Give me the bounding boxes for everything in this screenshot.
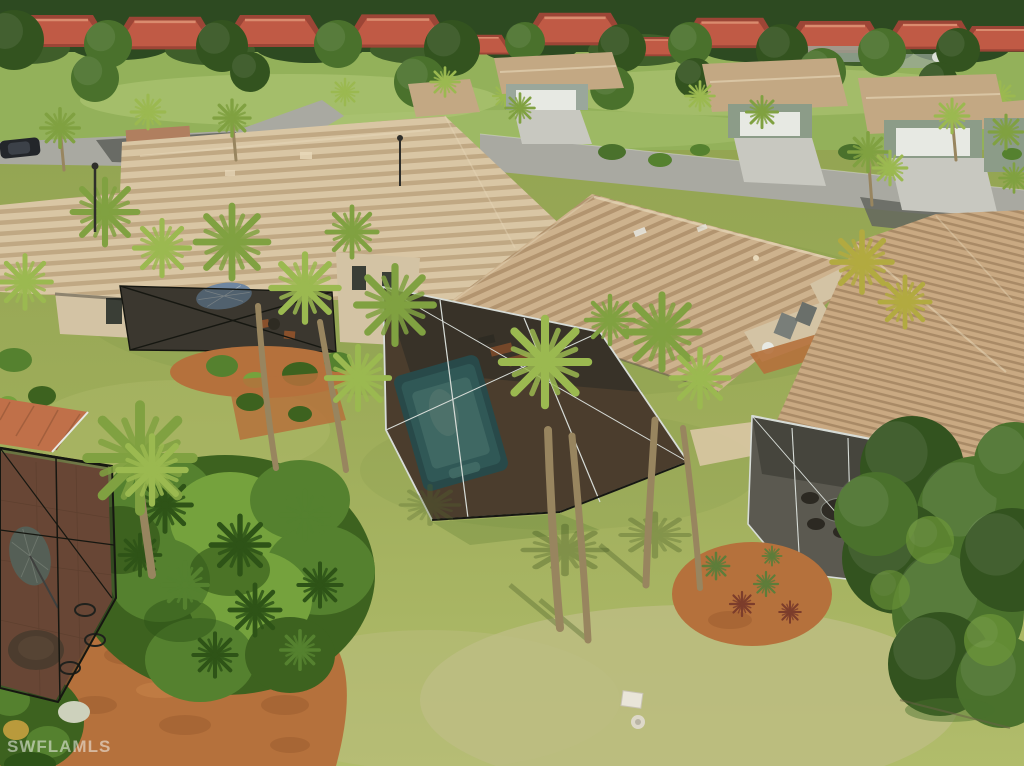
palm-tree — [746, 96, 778, 128]
palm-tree — [326, 206, 378, 258]
golden-palm — [831, 231, 893, 293]
roof-vent — [753, 255, 759, 261]
palm-tree — [40, 108, 80, 148]
palm-tree — [500, 317, 589, 406]
palm-tree — [117, 435, 187, 505]
window — [352, 266, 366, 290]
agave-plant — [754, 572, 779, 597]
palm-tree — [213, 99, 250, 136]
palm-tree — [505, 93, 535, 123]
driveway — [734, 138, 826, 186]
window — [106, 298, 122, 324]
agave-plant — [730, 592, 755, 617]
palm-tree — [0, 255, 52, 310]
mls-watermark: SWFLAMLS — [7, 737, 111, 757]
palm-tree — [195, 205, 269, 279]
palm-tree — [585, 295, 635, 345]
palm-tree — [270, 253, 340, 323]
agave-plant — [779, 601, 801, 623]
palm-tree — [685, 81, 715, 111]
roof-vent — [300, 152, 312, 159]
palm-tree — [71, 178, 138, 245]
palm-tree — [670, 348, 730, 408]
palm-tree — [989, 115, 1024, 150]
golden-palm — [879, 276, 931, 328]
palm-tree — [355, 265, 434, 344]
aerial-neighborhood-photo: SWFLAMLS — [0, 0, 1024, 766]
palm-tree — [935, 99, 970, 134]
palm-tree — [873, 151, 908, 186]
house-roof — [702, 58, 848, 112]
palm-tree — [133, 219, 190, 276]
palm-tree — [326, 346, 391, 411]
roof-vent — [225, 170, 235, 176]
palm-tree — [131, 95, 166, 130]
garage-door — [896, 128, 970, 156]
utility-cover — [621, 691, 643, 709]
palm-tree — [848, 132, 888, 172]
palm-tree — [624, 294, 701, 371]
agave-plant — [762, 546, 782, 566]
agave-plant — [702, 552, 729, 579]
photo-canvas — [0, 0, 1024, 766]
palm-tree — [430, 67, 460, 97]
